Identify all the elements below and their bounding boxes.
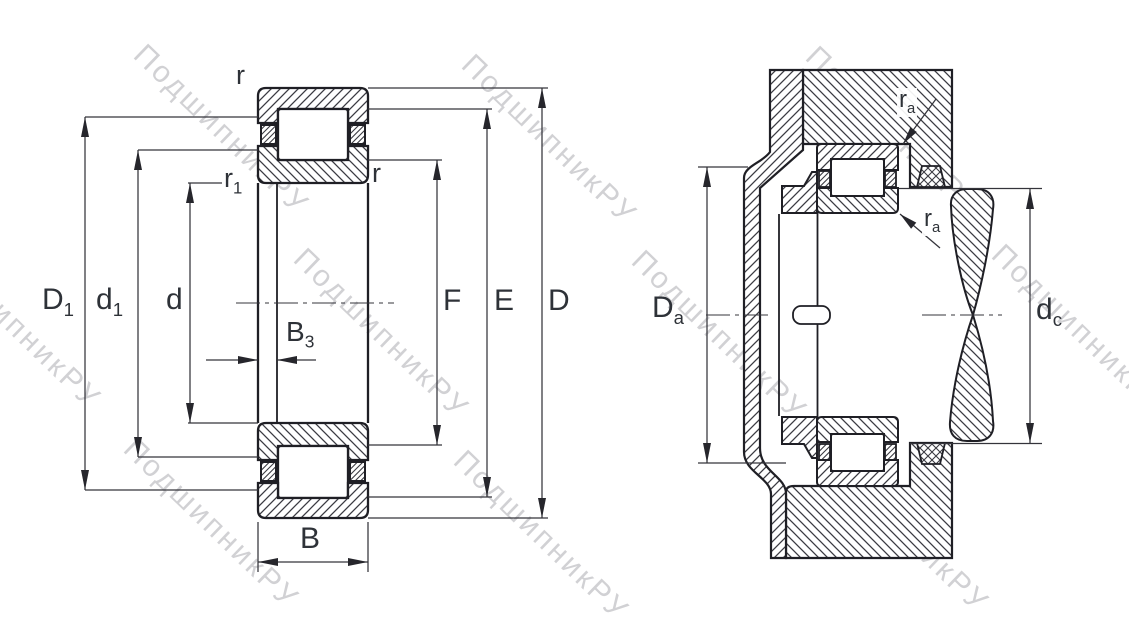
label-sub: a bbox=[932, 220, 940, 236]
arrowhead bbox=[186, 183, 194, 203]
shaft-break-lower bbox=[950, 315, 993, 441]
label-sub: 1 bbox=[64, 299, 74, 320]
dim-label-r1: r1 bbox=[224, 165, 242, 197]
dim-label-D1: D1 bbox=[42, 285, 74, 320]
roller-bottom bbox=[831, 434, 884, 471]
arrowhead bbox=[277, 356, 297, 364]
arrowhead bbox=[703, 443, 711, 463]
arrowhead bbox=[186, 403, 194, 423]
arrowhead bbox=[134, 437, 142, 457]
dim-label-E: E bbox=[494, 286, 514, 316]
shaft-center-slot bbox=[793, 306, 830, 324]
dim-label-d1: d1 bbox=[96, 285, 123, 320]
dim-label-ra-upper: ra bbox=[897, 88, 917, 117]
dim-label-dc: dc bbox=[1036, 295, 1062, 330]
label-base: d bbox=[96, 283, 113, 316]
label-base: D bbox=[42, 283, 64, 316]
roller-top bbox=[278, 109, 348, 160]
arrowhead bbox=[1026, 189, 1034, 209]
roller-top bbox=[831, 159, 884, 196]
label-base: D bbox=[652, 291, 674, 324]
arrowhead bbox=[483, 477, 491, 497]
cage-bar-bottom-left bbox=[819, 444, 830, 460]
dim-label-B: B bbox=[300, 524, 320, 554]
right-view-mounted-section bbox=[744, 70, 993, 558]
dim-label-B3: B3 bbox=[286, 318, 314, 351]
dim-label-Da: Da bbox=[652, 293, 684, 328]
arrowhead bbox=[538, 498, 546, 518]
felt-seal-bottom bbox=[917, 443, 945, 464]
arrowhead bbox=[258, 558, 278, 566]
arrowhead bbox=[81, 117, 89, 137]
arrowhead bbox=[1026, 423, 1034, 443]
dim-label-ra-lower: ra bbox=[922, 207, 942, 236]
arrowhead bbox=[483, 109, 491, 129]
label-sub: c bbox=[1053, 309, 1062, 330]
roller-bottom bbox=[278, 446, 348, 498]
arrowhead bbox=[433, 160, 441, 180]
label-sub: a bbox=[907, 101, 915, 117]
label-sub: a bbox=[674, 307, 684, 328]
label-base: B bbox=[286, 316, 305, 347]
label-sub: 3 bbox=[305, 332, 315, 352]
dim-label-D: D bbox=[548, 286, 570, 316]
cage-bar-top-right bbox=[350, 125, 365, 144]
angle-ring-bottom bbox=[782, 417, 817, 458]
cage-bar-bottom-left bbox=[261, 462, 276, 481]
arrowhead bbox=[81, 470, 89, 490]
cage-bar-bottom-right bbox=[350, 462, 365, 481]
shaft-break-upper bbox=[951, 189, 993, 315]
label-base: d bbox=[1036, 293, 1053, 326]
arrowhead bbox=[238, 356, 258, 364]
arrowhead bbox=[538, 88, 546, 108]
dim-label-r-top: r bbox=[236, 62, 245, 89]
arrowhead bbox=[134, 150, 142, 170]
arrowhead bbox=[348, 558, 368, 566]
dim-label-d: d bbox=[166, 285, 183, 315]
dim-label-F: F bbox=[443, 286, 461, 316]
cage-bar-top-right bbox=[885, 171, 896, 187]
felt-seal-top bbox=[917, 166, 945, 187]
label-base: r bbox=[924, 205, 932, 232]
cage-bar-top-left bbox=[819, 171, 830, 187]
angle-ring-top bbox=[782, 172, 817, 213]
bearing-dimension-drawing: ПодшипникРУ ПодшипникРУ ПодшипникРУ Подш… bbox=[0, 0, 1129, 632]
arrowhead bbox=[433, 425, 441, 445]
dim-label-r-mid: r bbox=[372, 160, 381, 187]
label-sub: 1 bbox=[233, 178, 242, 197]
cage-bar-top-left bbox=[261, 125, 276, 144]
label-base: r bbox=[224, 163, 233, 193]
label-base: r bbox=[899, 86, 907, 113]
cage-bar-bottom-right bbox=[885, 444, 896, 460]
label-sub: 1 bbox=[113, 299, 123, 320]
arrowhead bbox=[703, 167, 711, 187]
